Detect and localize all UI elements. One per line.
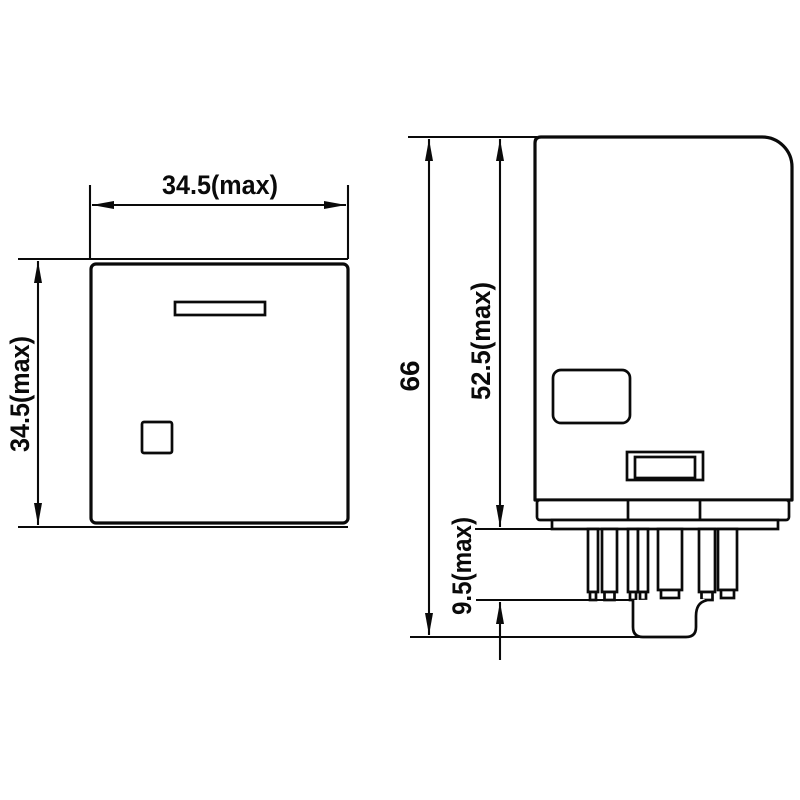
pin <box>602 529 617 600</box>
pin <box>638 529 648 600</box>
pin <box>718 529 737 598</box>
pin <box>628 529 638 600</box>
indicator-window <box>175 302 265 315</box>
pin-group <box>588 529 737 600</box>
front-width-label: 34.5(max) <box>162 170 278 200</box>
front-height-label: 34.5(max) <box>5 336 35 452</box>
mounting-flange <box>537 500 789 520</box>
front-width-dimension: 34.5(max) <box>18 170 348 259</box>
front-view <box>91 264 348 523</box>
pin <box>588 529 598 600</box>
drawing-canvas: 34.5(max) 34.5(max) <box>0 0 800 800</box>
pin <box>699 529 715 600</box>
center-post <box>633 599 706 637</box>
body-height-label: 52.5(max) <box>466 282 496 400</box>
side-body <box>535 137 792 500</box>
side-view <box>535 137 792 637</box>
pin-length-label: 9.5(max) <box>447 517 477 615</box>
pin <box>658 529 682 598</box>
button-detail <box>142 422 172 453</box>
latch-slot-inner <box>635 457 695 478</box>
relay-dimension-drawing: 34.5(max) 34.5(max) <box>0 0 800 800</box>
label-window <box>553 370 630 423</box>
overall-height-label: 66 <box>395 361 425 392</box>
